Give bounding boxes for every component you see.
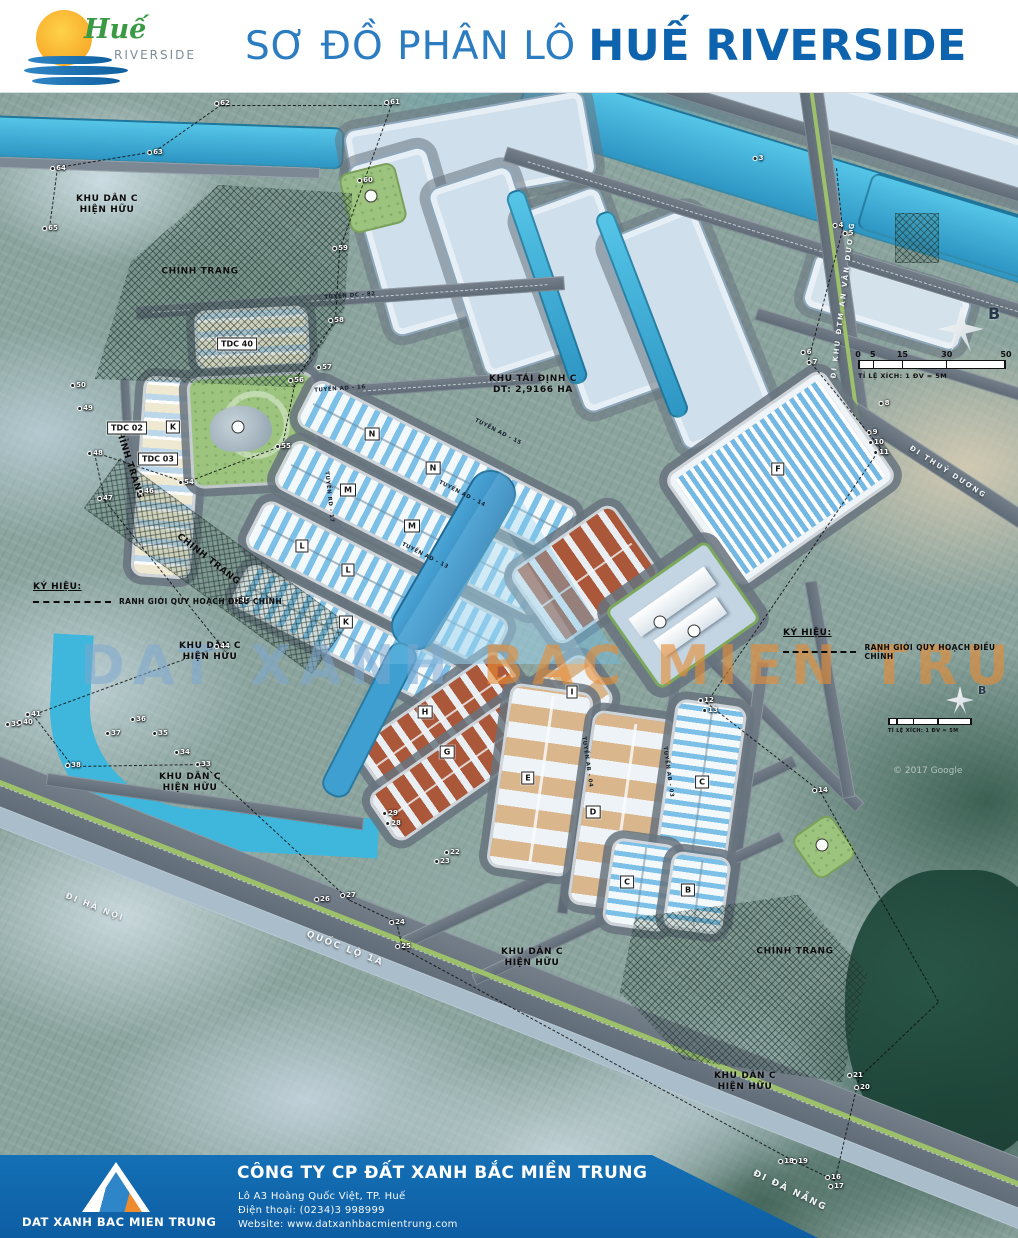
scale-tick-label: 30: [941, 350, 952, 359]
boundary-line: [222, 105, 392, 106]
boundary-point: 33: [195, 760, 211, 768]
boundary-point: 44: [214, 642, 230, 650]
page: DAT XANH BAC MIEN TRUNG © 2017 Google KÝ…: [0, 0, 1018, 1238]
scale-tick-label: 15: [897, 350, 908, 359]
boundary-point: 64: [50, 164, 66, 172]
block-chip: H: [418, 706, 433, 719]
boundary-point: 49: [77, 404, 93, 412]
block-chip: L: [295, 540, 308, 553]
boundary-point: 12: [698, 696, 714, 704]
block-chip: F: [771, 463, 784, 476]
legend-item-label: RANH GIỚI QUY HOẠCH ĐIỀU CHỈNH: [864, 643, 1018, 661]
block-chip: N: [426, 462, 441, 475]
scale-ticks: 05153050: [858, 350, 1006, 360]
scale-bar-mini: TỈ LỆ XÍCH: 1 ĐV = 5M: [888, 718, 972, 734]
page-title: SƠ ĐỒ PHÂN LÔ HUẾ RIVERSIDE: [245, 0, 967, 92]
area-label: KHU DÂN C HIỆN HỮU: [159, 772, 221, 794]
green-parcel-marker: [365, 190, 378, 203]
block-chip: N: [365, 428, 380, 441]
boundary-point: 29: [382, 809, 398, 817]
boundary-point: 36: [130, 715, 146, 723]
scale-tick-label: 50: [1000, 350, 1011, 359]
park-southeast-marker: [816, 839, 829, 852]
boundary-point: 60: [357, 176, 373, 184]
scale-bar-mini-ruler: [888, 718, 972, 725]
boundary-point: 56: [288, 376, 304, 384]
boundary-point: 65: [42, 224, 58, 232]
hatch-area-small: [895, 213, 939, 263]
block-chip: TDC 02: [107, 422, 147, 435]
block-chip: TDC 03: [138, 453, 178, 466]
boundary-point: 50: [70, 381, 86, 389]
scale-bar: 05153050 TỈ LỆ XÍCH: 1 ĐV = 5M: [858, 350, 1006, 380]
legend-title: KÝ HIỆU:: [783, 628, 1018, 638]
header: Huế RIVERSIDE SƠ ĐỒ PHÂN LÔ HUẾ RIVERSID…: [0, 0, 1018, 93]
area-label: KHU DÂN C HIỆN HỮU: [714, 1071, 776, 1093]
title-bold: HUẾ RIVERSIDE: [588, 21, 967, 71]
boundary-point: 13: [702, 706, 718, 714]
boundary-point: 37: [105, 729, 121, 737]
block-chip: G: [440, 746, 455, 759]
boundary-point: 10: [868, 438, 884, 446]
scale-tick-mark: [858, 361, 860, 368]
block-chip: M: [340, 484, 356, 497]
legend-title: KÝ HIỆU:: [33, 582, 282, 592]
boundary-point: 63: [147, 148, 163, 156]
boundary-point: 61: [384, 98, 400, 106]
north-label-mini: B: [978, 684, 986, 697]
boundary-point: 35: [152, 729, 168, 737]
boundary-point: 40: [17, 718, 33, 726]
school-marker-1: [654, 616, 667, 629]
company-phone: Điện thoại: (0234)3 998999: [238, 1205, 385, 1216]
scale-tick-mark: [946, 361, 948, 368]
boundary-point: 47: [97, 494, 113, 502]
boundary-point: 38: [65, 761, 81, 769]
block-chip: M: [404, 520, 420, 533]
footer-logo-text: DAT XANH BAC MIEN TRUNG: [22, 1215, 212, 1229]
scale-tick-mark: [937, 719, 939, 724]
boundary-point: 11: [873, 448, 889, 456]
wave-icon: [32, 77, 120, 85]
boundary-point: 6: [801, 348, 812, 356]
scale-tick-label: 0: [855, 350, 861, 359]
area-label: KHU DÂN C HIỆN HỮU: [76, 194, 138, 216]
scale-tick-mark: [913, 719, 915, 724]
block-chip: B: [681, 884, 695, 897]
watermark-part1: DAT XANH: [80, 634, 483, 697]
boundary-point: 41: [25, 710, 41, 718]
dashed-line-sample: [783, 651, 856, 653]
scale-mini-caption: TỈ LỆ XÍCH: 1 ĐV = 5M: [888, 728, 972, 734]
hue-riverside-logo: Huế RIVERSIDE: [22, 6, 232, 86]
block-chip: D: [586, 806, 601, 819]
boundary-point: 7: [807, 358, 818, 366]
scale-tick-mark: [902, 361, 904, 368]
boundary-point: 3: [753, 154, 764, 162]
scale-bar-ruler: [858, 360, 1006, 369]
area-label: KHU DÂN C HIỆN HỮU: [179, 641, 241, 663]
company-address: Lô A3 Hoàng Quốc Việt, TP. Huế: [238, 1191, 406, 1202]
boundary-point: 59: [332, 244, 348, 252]
scale-tick-mark: [1004, 361, 1006, 368]
boundary-point: 21: [847, 1071, 863, 1079]
boundary-point: 17: [828, 1182, 844, 1190]
block-chip: C: [695, 776, 709, 789]
area-label: KHU TÁI ĐỊNH C DT: 2,9166 HA: [489, 374, 577, 396]
block-chip: TDC 40: [217, 338, 257, 351]
company-name: CÔNG TY CP ĐẤT XANH BẮC MIỀN TRUNG: [237, 1163, 647, 1183]
block-chip: E: [521, 772, 534, 785]
boundary-point: 20: [854, 1083, 870, 1091]
scale-tick-mark: [970, 719, 972, 724]
scale-tick-mark: [873, 361, 875, 368]
boundary-point: 5: [843, 229, 854, 237]
boundary-point: 9: [867, 428, 878, 436]
boundary-point: 24: [389, 918, 405, 926]
boundary-point: 54: [178, 478, 194, 486]
boundary-point: 25: [395, 942, 411, 950]
logo-sub-text: RIVERSIDE: [114, 48, 196, 62]
area-label: CHỈNH TRANG: [161, 267, 238, 278]
legend-east: KÝ HIỆU: RANH GIỚI QUY HOẠCH ĐIỀU CHỈNH: [783, 628, 1018, 661]
wave-icon: [24, 66, 128, 75]
boundary-point: 19: [792, 1157, 808, 1165]
scale-tick-mark: [896, 719, 898, 724]
scale-tick-mark: [888, 719, 890, 724]
block-chip: K: [166, 421, 180, 434]
boundary-point: 23: [434, 857, 450, 865]
company-website[interactable]: Website: www.datxanhbacmientrung.com: [238, 1219, 458, 1230]
boundary-point: 34: [174, 748, 190, 756]
boundary-point: 46: [138, 487, 154, 495]
park-marker: [232, 421, 245, 434]
boundary-point: 48: [87, 449, 103, 457]
block-chip: C: [620, 876, 634, 889]
boundary-point: 28: [385, 819, 401, 827]
boundary-point: 14: [812, 786, 828, 794]
block-chip: I: [567, 686, 578, 699]
block-chip: L: [341, 564, 354, 577]
boundary-point: 62: [214, 99, 230, 107]
boundary-point: 16: [825, 1173, 841, 1181]
boundary-point: 8: [879, 399, 890, 407]
north-label: B: [988, 304, 1000, 323]
boundary-point: 27: [340, 891, 356, 899]
boundary-point: 22: [444, 848, 460, 856]
area-label: CHỈNH TRANG: [756, 947, 833, 958]
legend-item-label: RANH GIỚI QUY HOẠCH ĐIỀU CHỈNH: [119, 597, 282, 606]
scale-caption: TỈ LỆ XÍCH: 1 ĐV = 5M: [858, 372, 1006, 380]
boundary-point: 58: [328, 316, 344, 324]
legend-west: KÝ HIỆU: RANH GIỚI QUY HOẠCH ĐIỀU CHỈNH: [33, 582, 282, 606]
master-plan-map: DAT XANH BAC MIEN TRUNG © 2017 Google KÝ…: [0, 0, 1018, 1238]
boundary-point: 57: [316, 363, 332, 371]
scale-tick-label: 5: [870, 350, 876, 359]
logo-script-text: Huế: [84, 14, 146, 45]
boundary-point: 55: [275, 442, 291, 450]
area-label: KHU DÂN C HIỆN HỮU: [501, 947, 563, 969]
block-chip: K: [339, 616, 353, 629]
boundary-point: 4: [833, 221, 844, 229]
dashed-line-sample: [33, 601, 111, 603]
title-regular: SƠ ĐỒ PHÂN LÔ: [245, 24, 576, 69]
imagery-credit: © 2017 Google: [893, 766, 962, 776]
wave-icon: [28, 56, 112, 64]
boundary-point: 26: [314, 895, 330, 903]
